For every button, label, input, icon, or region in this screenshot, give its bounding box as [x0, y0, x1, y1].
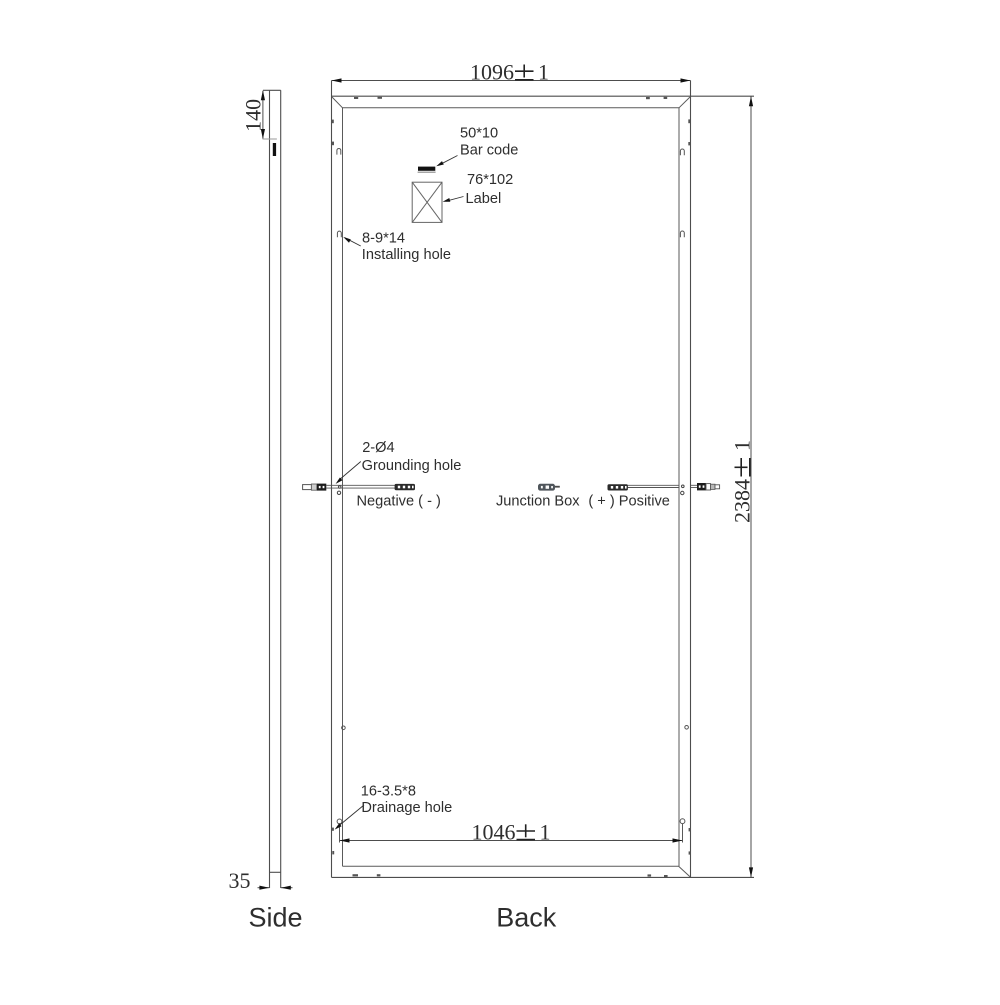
svg-text:Installing hole: Installing hole — [362, 247, 451, 263]
svg-text:1: 1 — [538, 60, 549, 85]
svg-text:Drainage hole: Drainage hole — [361, 800, 452, 816]
svg-text:76*102: 76*102 — [467, 172, 513, 188]
svg-text:Bar code: Bar code — [460, 143, 518, 159]
svg-text:1096: 1096 — [470, 60, 514, 85]
svg-text:Label: Label — [466, 191, 502, 207]
svg-text:Negative ( - ): Negative ( - ) — [357, 494, 441, 510]
svg-text:8-9*14: 8-9*14 — [362, 230, 405, 246]
svg-text:1: 1 — [540, 819, 551, 844]
svg-text:Grounding hole: Grounding hole — [362, 458, 462, 474]
svg-text:2384: 2384 — [730, 479, 755, 523]
svg-text:140: 140 — [241, 99, 266, 132]
svg-text:1: 1 — [730, 440, 755, 451]
svg-text:2-Ø4: 2-Ø4 — [362, 440, 394, 456]
svg-text:Side: Side — [248, 902, 302, 932]
svg-text:Back: Back — [496, 903, 557, 933]
svg-text:( + ) Positive: ( + ) Positive — [588, 494, 670, 510]
svg-text:Junction Box: Junction Box — [496, 494, 580, 510]
svg-text:16-3.5*8: 16-3.5*8 — [361, 784, 416, 800]
svg-text:35: 35 — [229, 868, 251, 893]
svg-text:1046: 1046 — [472, 819, 516, 844]
svg-text:50*10: 50*10 — [460, 126, 498, 142]
